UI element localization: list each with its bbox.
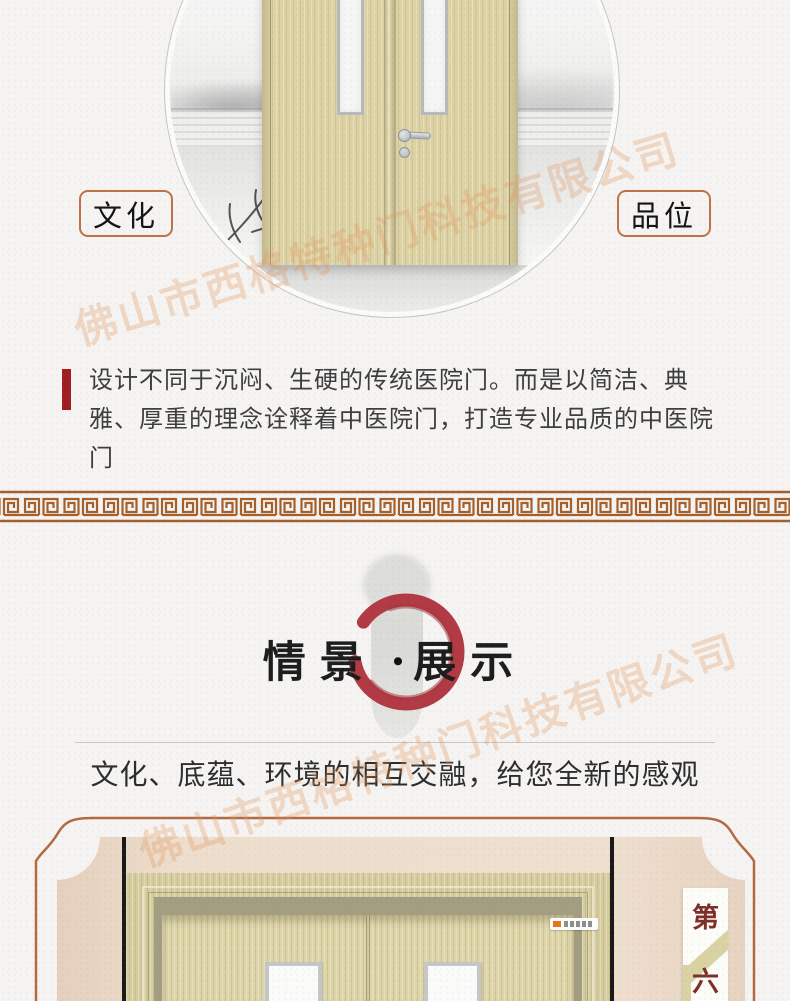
door-window-right: [421, 0, 448, 115]
door-window-left: [337, 0, 364, 115]
hero-circle-image: [164, 0, 620, 318]
accent-bar: [62, 369, 71, 410]
scene-double-door: [162, 915, 574, 1001]
meander-border: [0, 490, 790, 523]
section-title-left: 情景: [263, 640, 377, 687]
section-divider-line: [75, 742, 715, 743]
taste-tag-label: 品位: [631, 193, 697, 235]
brand-plate: [550, 918, 598, 930]
section-subtitle: 文化、底蕴、环境的相互交融，给您全新的感观: [0, 753, 790, 793]
scene-door-window-right: [424, 962, 481, 1001]
door-lock-cylinder: [399, 147, 410, 158]
hero-circle-photo: [170, 0, 614, 312]
door-frame-left: [262, 0, 271, 265]
product-detail-page: 佛山市西格特种门科技有限公司 佛山市西格特种门科技有限公司: [0, 0, 790, 1001]
scene-door-window-left: [265, 962, 322, 1001]
number-six-bookmark: 第 六: [683, 888, 728, 1001]
black-pillar-right: [610, 837, 614, 1001]
hero-double-door: [262, 0, 518, 265]
section-title-right: 展示: [413, 640, 527, 687]
section-title: 情景•展示: [0, 628, 790, 690]
design-description-text: 设计不同于沉闷、生硬的传统医院门。而是以简洁、典雅、厚重的理念诠释着中医院门，打…: [89, 362, 734, 479]
scene-door-center-seam: [366, 915, 370, 1001]
scene-photo: 第 六: [57, 837, 745, 1001]
door-frame-right: [509, 0, 518, 265]
taste-tag: 品位: [617, 190, 711, 237]
design-description: 设计不同于沉闷、生硬的传统医院门。而是以简洁、典雅、厚重的理念诠释着中医院门，打…: [62, 362, 742, 479]
photo-floor: [170, 265, 614, 312]
bookmark-char-top: 第: [683, 896, 728, 935]
door-center-seam: [384, 0, 396, 265]
section-title-dot: •: [393, 645, 404, 679]
scene-display-section: 第 六: [0, 808, 790, 1001]
wood-doorway-frame: [126, 873, 610, 1001]
bookmark-char-bottom: 六: [683, 960, 728, 999]
culture-tag-label: 文化: [93, 193, 159, 235]
culture-tag: 文化: [79, 190, 173, 237]
door-handle-rosette: [398, 129, 411, 142]
